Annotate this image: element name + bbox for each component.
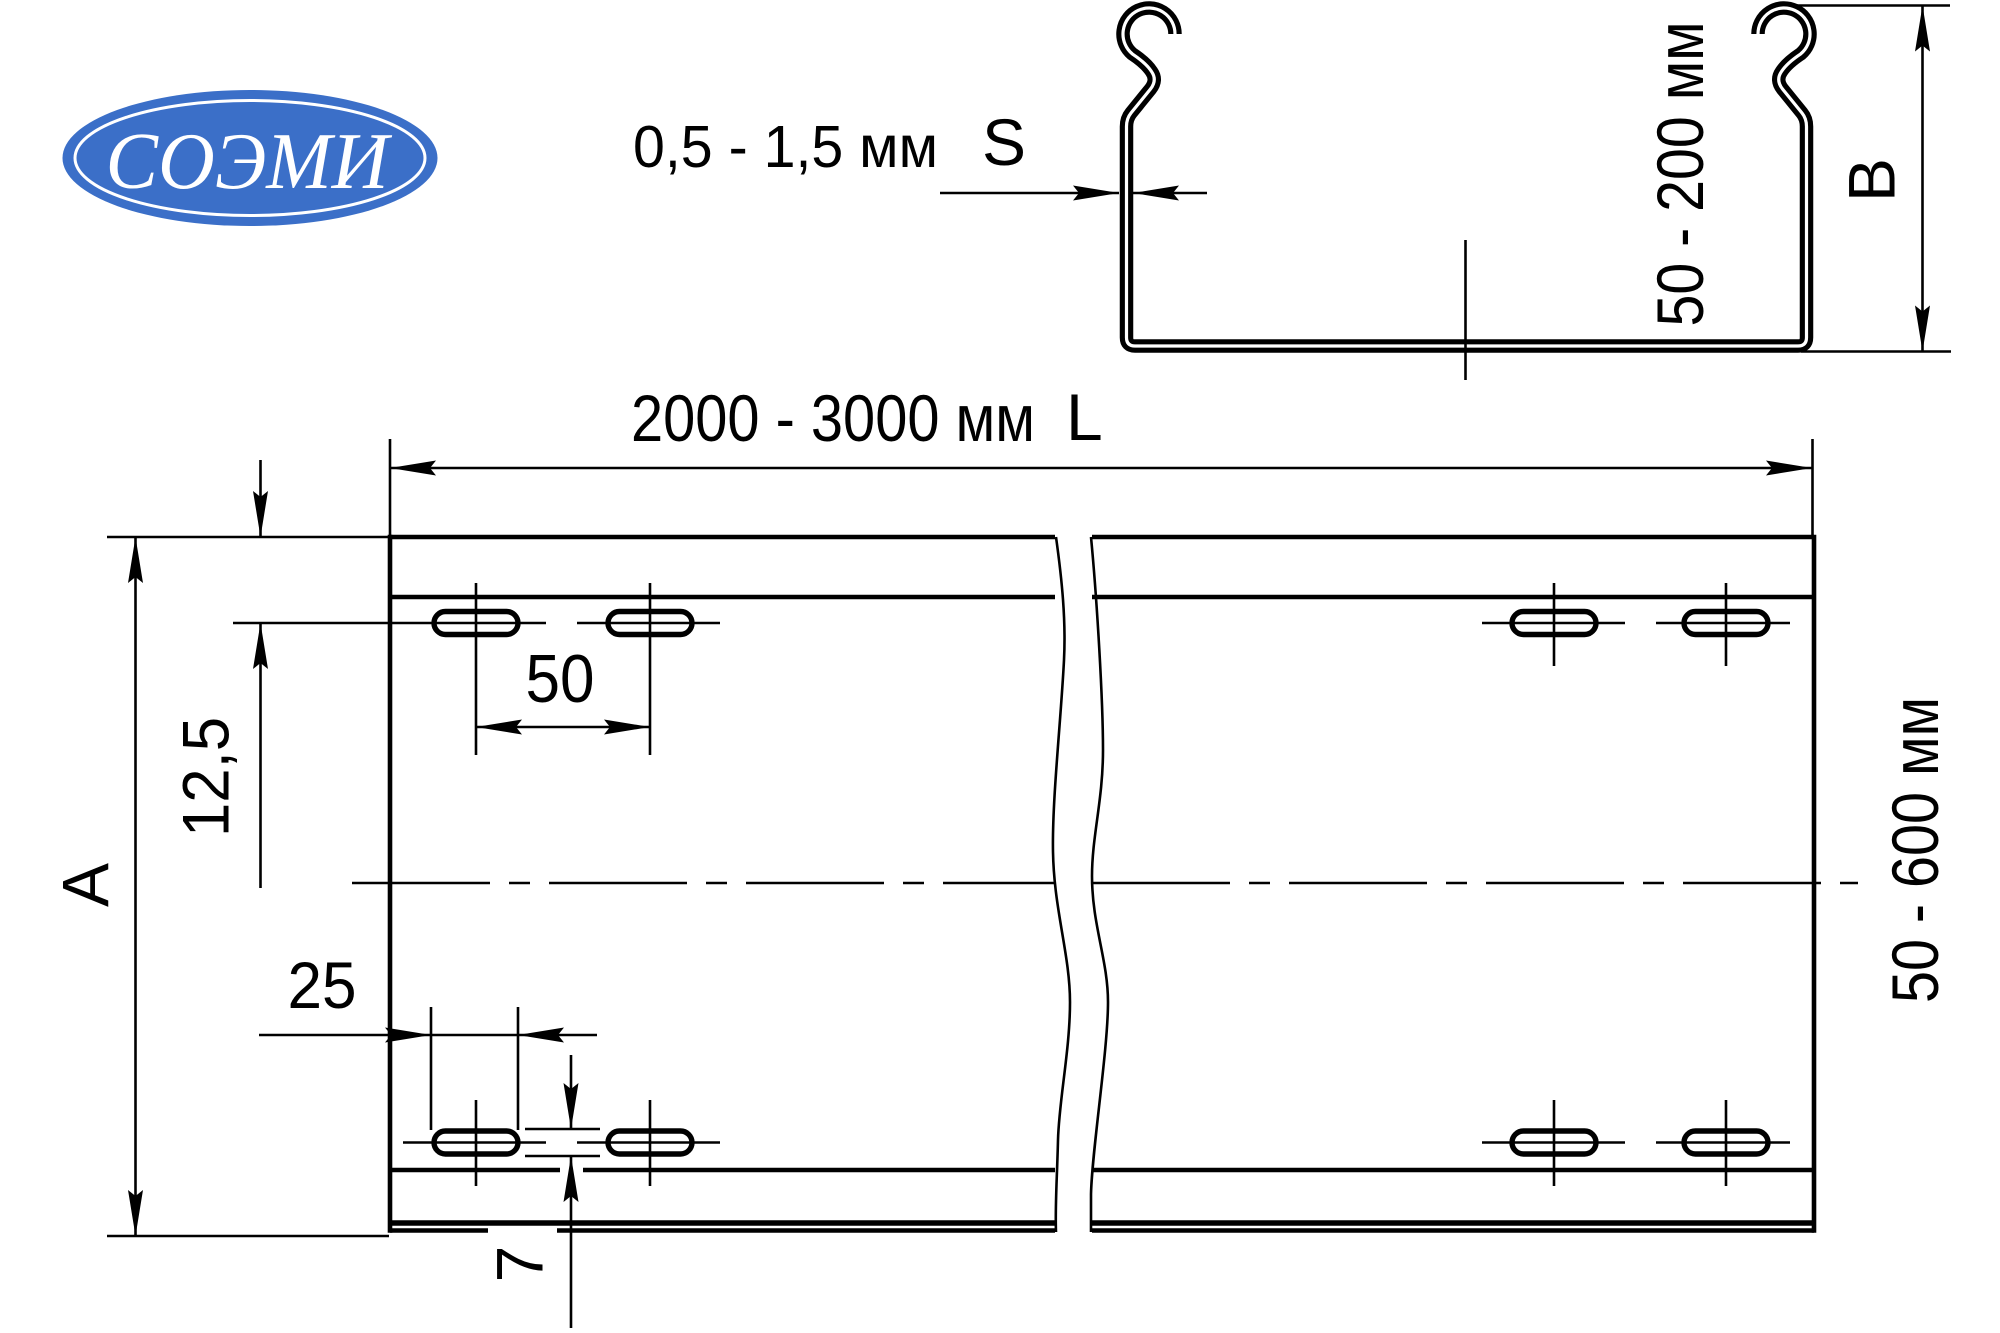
svg-text:B: B [1835,158,1909,202]
svg-text:25: 25 [288,948,357,1022]
svg-text:A: A [49,863,123,907]
svg-text:50: 50 [526,641,595,717]
svg-text:L: L [1066,380,1103,454]
svg-text:7: 7 [483,1246,557,1283]
svg-text:2000 - 3000 мм: 2000 - 3000 мм [631,381,1035,455]
svg-text:S: S [982,105,1026,179]
svg-text:50 - 200 мм: 50 - 200 мм [1643,22,1717,327]
svg-text:СОЭМИ: СОЭМИ [106,118,393,206]
svg-text:12,5: 12,5 [169,717,243,837]
svg-text:0,5 - 1,5 мм: 0,5 - 1,5 мм [633,114,938,180]
svg-text:50 - 600 мм: 50 - 600 мм [1878,697,1952,1003]
